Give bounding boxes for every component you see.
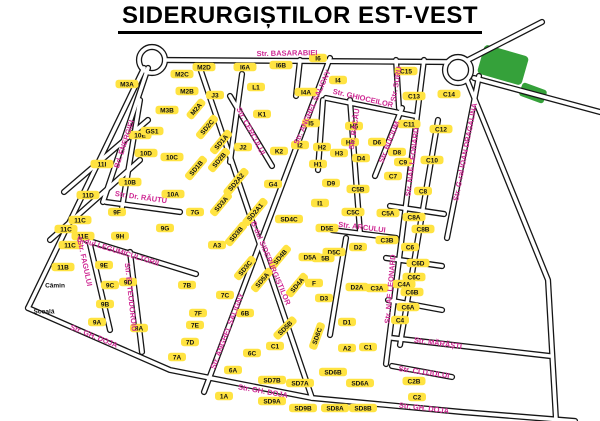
block-label: 11C <box>64 242 76 249</box>
map-block: SD7B <box>258 376 286 385</box>
map-block: SD6A <box>346 379 374 388</box>
block-label: SD7B <box>263 377 281 384</box>
block-label: J2 <box>239 144 247 151</box>
block-label: 7C <box>221 292 230 299</box>
block-label: C14 <box>443 91 455 98</box>
block-label: SD9B <box>294 405 312 412</box>
block-label: SD6A <box>351 380 369 387</box>
block-label: C2 <box>413 394 422 401</box>
block-label: 11C <box>74 217 86 224</box>
map-block: SD3B <box>224 221 249 248</box>
map-block: C1 <box>266 342 284 351</box>
map-block: 9F <box>108 208 126 217</box>
map-title: SIDERURGIȘTILOR EST-VEST <box>118 2 482 34</box>
map-block: SD8A <box>321 404 349 413</box>
map-block: 9E <box>95 261 113 270</box>
block-label: 10D <box>140 150 152 157</box>
block-label: D8 <box>393 149 402 156</box>
map-block: C6D <box>407 259 430 268</box>
block-label: C6A <box>401 304 414 311</box>
map-block: 7E <box>186 321 204 330</box>
block-label: C3A <box>370 285 383 292</box>
block-label: C8 <box>419 188 428 195</box>
block-label: D2 <box>354 244 363 251</box>
block-label: C5B <box>351 186 364 193</box>
block-label: H1 <box>314 161 323 168</box>
block-label: D1 <box>343 319 352 326</box>
block-label: C5C <box>346 209 359 216</box>
block-label: 9A <box>93 319 102 326</box>
block-label: M2B <box>180 88 194 95</box>
map-block: Școală <box>34 308 55 315</box>
map-block: A2 <box>338 344 356 353</box>
block-label: D4 <box>357 155 366 162</box>
block-label: 10C <box>166 154 178 161</box>
map-block: H3 <box>330 149 348 158</box>
map-block: 7F <box>189 309 207 318</box>
map-block: SD3A <box>209 191 234 218</box>
block-label: Cămin <box>45 282 65 289</box>
block-label: 1A <box>220 393 229 400</box>
map-block: 7D <box>181 338 199 347</box>
map-block: SD7A <box>286 379 314 388</box>
map-block: C6B <box>401 288 424 297</box>
block-label: GS1 <box>145 128 158 135</box>
map-block: 9B <box>96 300 114 309</box>
block-label: K1 <box>258 111 267 118</box>
block-label: C13 <box>408 93 420 100</box>
map-block: 11I <box>91 160 114 169</box>
map-block: L1 <box>247 83 265 92</box>
map-block: D5A <box>299 253 322 262</box>
block-label: H3 <box>335 150 344 157</box>
map-block: SD4C <box>275 215 303 224</box>
block-label: C4 <box>396 317 405 324</box>
map-block: C6 <box>401 243 419 252</box>
map-block: C10 <box>421 156 444 165</box>
block-label: I4A <box>301 89 311 96</box>
block-label: I6A <box>240 64 250 71</box>
map-block: C14 <box>438 90 461 99</box>
map-block: 10C <box>161 153 184 162</box>
block-label: 11D <box>82 192 94 199</box>
block-label: 9F <box>113 209 121 216</box>
map-block: 11B <box>52 263 75 272</box>
block-label: 9C <box>106 282 115 289</box>
map-block: 1A <box>215 392 233 401</box>
map-block: M2A <box>185 97 206 120</box>
map-block: C5B <box>347 185 370 194</box>
block-label: A2 <box>343 345 352 352</box>
block-label: 6B <box>241 310 250 317</box>
map-block: 11C <box>69 216 92 225</box>
map-block: 9G <box>156 224 174 233</box>
map-block: Cămin <box>45 282 65 289</box>
block-label: C10 <box>426 157 438 164</box>
map-block: C7 <box>384 172 402 181</box>
block-label: SD9A <box>263 398 281 405</box>
map-block: K2 <box>270 147 288 156</box>
roundabout-west <box>139 47 165 73</box>
map-block: F <box>305 279 323 288</box>
block-label: 6A <box>229 367 238 374</box>
map-block: D4 <box>352 154 370 163</box>
block-label: K2 <box>275 148 284 155</box>
map-block: 6C <box>243 349 261 358</box>
map-block: 7A <box>168 353 186 362</box>
map-block: K1 <box>253 110 271 119</box>
block-label: 9E <box>100 262 109 269</box>
block-label: SD8B <box>354 405 372 412</box>
map-block: I6B <box>270 61 293 70</box>
block-label: C6D <box>411 260 424 267</box>
street-name-label: Str. ANGHEL SALIGNY <box>208 292 245 371</box>
block-label: SD4C <box>280 216 298 223</box>
block-label: A3 <box>213 242 222 249</box>
block-label: H2 <box>318 144 327 151</box>
map-block: J3 <box>206 91 224 100</box>
map-block: C3B <box>376 236 399 245</box>
map-block: H1 <box>309 160 327 169</box>
block-label: I6B <box>276 62 286 69</box>
map-block: D2 <box>349 243 367 252</box>
map-block: SD2C <box>195 114 220 141</box>
block-label: C1 <box>364 344 373 351</box>
block-label: D2A <box>350 284 363 291</box>
block-label: J3 <box>211 92 219 99</box>
city-map: M3AM3BM2BM2CM2DM2ASD2CJ3J2K1K2I2I5I4AI4L… <box>0 0 600 421</box>
map-block: C12 <box>430 125 453 134</box>
map-block: 9A <box>88 318 106 327</box>
map-block: C5A <box>377 209 400 218</box>
map-block: M3A <box>116 80 139 89</box>
labels-layer: M3AM3BM2BM2CM2DM2ASD2CJ3J2K1K2I2I5I4AI4L… <box>34 48 480 416</box>
block-label: 9B <box>101 301 110 308</box>
map-block: D9 <box>322 179 340 188</box>
block-label: C7 <box>389 173 398 180</box>
map-block: C2B <box>403 377 426 386</box>
map-block: C8 <box>414 187 432 196</box>
block-label: C8B <box>416 226 429 233</box>
block-label: C3B <box>380 237 393 244</box>
road-basarabiei <box>165 60 448 62</box>
map-block: 10D <box>135 149 158 158</box>
map-canvas: M3AM3BM2BM2CM2DM2ASD2CJ3J2K1K2I2I5I4AI4L… <box>0 0 600 421</box>
block-label: M2D <box>197 64 211 71</box>
block-label: C8A <box>407 214 420 221</box>
title-bar: SIDERURGIȘTILOR EST-VEST <box>0 2 600 34</box>
block-label: M3B <box>160 107 174 114</box>
map-block: D3 <box>315 294 333 303</box>
block-label: D9 <box>327 180 336 187</box>
block-label: C4A <box>397 281 410 288</box>
block-label: C1 <box>271 343 280 350</box>
map-block: C2 <box>408 393 426 402</box>
block-label: 9G <box>161 225 170 232</box>
block-label: 7D <box>186 339 195 346</box>
road-east-boundary <box>467 80 556 420</box>
map-block: I6A <box>234 63 257 72</box>
block-label: 11I <box>98 161 107 168</box>
street-name-label: Str. BASARABIEI <box>257 48 318 58</box>
block-label: M2C <box>175 71 189 78</box>
block-label: 10A <box>167 191 179 198</box>
block-label: D5E <box>321 225 334 232</box>
block-label: M3A <box>120 81 134 88</box>
map-block: 6A <box>224 366 242 375</box>
block-label: SD7A <box>291 380 309 387</box>
map-block: 9H <box>111 232 129 241</box>
block-label: 7B <box>183 282 192 289</box>
map-block: C5C <box>342 208 365 217</box>
map-block: GS1 <box>141 127 164 136</box>
map-block: M3B <box>156 106 179 115</box>
map-block: C4A <box>393 280 416 289</box>
block-label: C5A <box>381 210 394 217</box>
map-block: D1 <box>338 318 356 327</box>
map-block: C4 <box>391 316 409 325</box>
map-block: D2A <box>346 283 369 292</box>
block-label: D5A <box>303 254 316 261</box>
map-block: C8A <box>403 213 426 222</box>
map-block: D5E <box>316 224 339 233</box>
block-label: 10B <box>124 179 136 186</box>
roundabout-east <box>445 57 471 83</box>
map-block: 10B <box>119 178 142 187</box>
map-block: SD6C <box>308 321 326 350</box>
block-label: 7E <box>191 322 200 329</box>
map-block: SD1B <box>184 155 209 182</box>
block-label: D3 <box>320 295 329 302</box>
block-label: 9H <box>116 233 125 240</box>
map-block: I4 <box>329 76 347 85</box>
block-label: I1 <box>317 200 323 207</box>
block-label: C11 <box>403 121 415 128</box>
block-label: F <box>312 280 316 287</box>
block-label: Școală <box>34 308 55 315</box>
map-block: 11D <box>77 191 100 200</box>
block-label: 11C <box>60 226 72 233</box>
block-label: G4 <box>269 181 278 188</box>
map-block: SD8B <box>349 404 377 413</box>
map-block: M2D <box>193 63 216 72</box>
map-block: 7C <box>216 291 234 300</box>
block-label: C6 <box>406 244 415 251</box>
block-label: L1 <box>252 84 260 91</box>
block-label: SD6C <box>311 327 324 346</box>
block-label: 11B <box>57 264 69 271</box>
block-label: C2B <box>407 378 420 385</box>
block-label: 7G <box>191 209 200 216</box>
map-block: C8B <box>412 225 435 234</box>
block-label: C6B <box>405 289 418 296</box>
block-label: 7F <box>194 310 202 317</box>
block-label: SD6B <box>324 369 342 376</box>
block-label: 7A <box>173 354 182 361</box>
block-label: D6 <box>373 139 382 146</box>
road-east-boundary <box>467 80 556 420</box>
block-label: SD8A <box>326 405 344 412</box>
map-block: A3 <box>208 241 226 250</box>
map-block: J2 <box>234 143 252 152</box>
map-block: 7B <box>178 281 196 290</box>
map-block: C13 <box>403 92 426 101</box>
map-block: SD9B <box>289 404 317 413</box>
map-block: H2 <box>313 143 331 152</box>
road-minor-v2 <box>318 100 323 170</box>
block-label: I4 <box>335 77 341 84</box>
map-block: 9C <box>101 281 119 290</box>
street-name-label: Str. MĂRĂȘTI <box>413 335 462 351</box>
map-block: C6A <box>397 303 420 312</box>
map-block: C1 <box>359 343 377 352</box>
map-block: 7G <box>186 208 204 217</box>
street-name-label: Str. GH. DOJA <box>398 401 450 416</box>
map-block: G4 <box>264 180 282 189</box>
block-label: 6C <box>248 350 257 357</box>
street-name-label: Str. G-ral IOAN DRAGALINA <box>451 102 479 202</box>
block-label: C12 <box>435 126 447 133</box>
road-exit-ne2 <box>474 78 600 112</box>
map-block: M2B <box>176 87 199 96</box>
map-block: SD6B <box>319 368 347 377</box>
map-block: M2C <box>171 70 194 79</box>
map-block: I1 <box>311 199 329 208</box>
